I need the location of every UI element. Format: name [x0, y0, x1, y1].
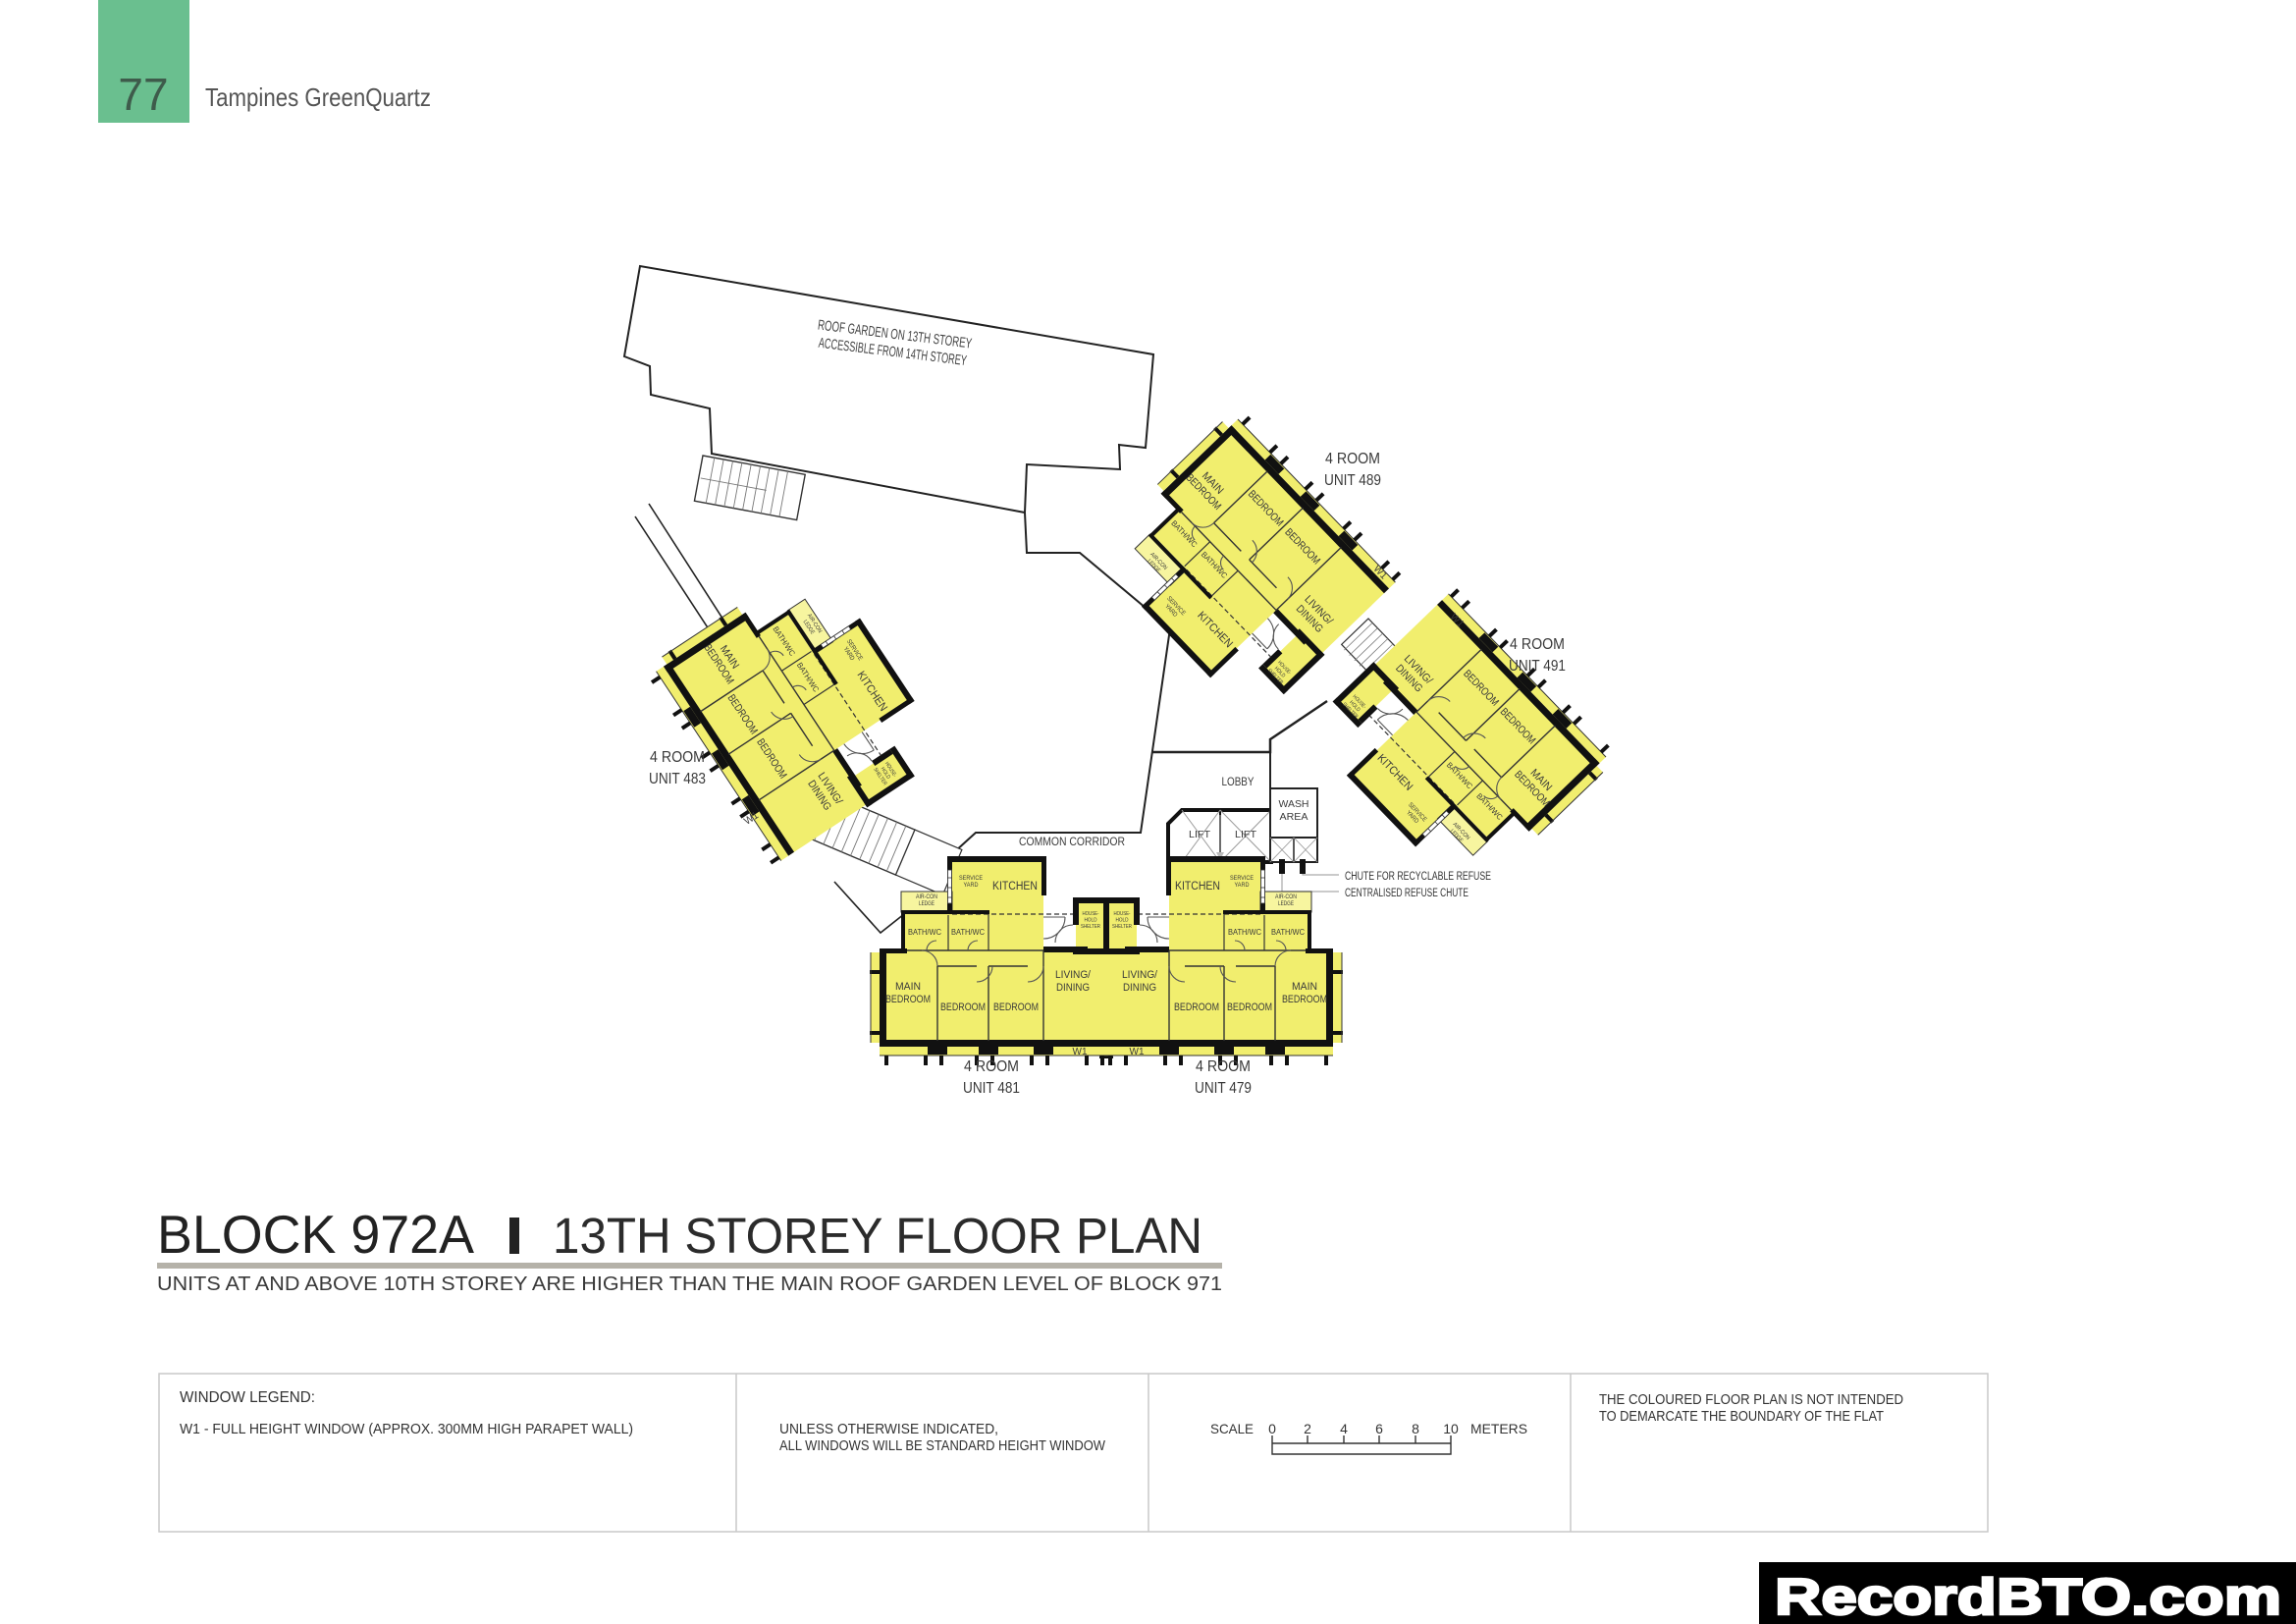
svg-text:TO DEMARCATE THE BOUNDARY OF T: TO DEMARCATE THE BOUNDARY OF THE FLAT: [1599, 1409, 1884, 1425]
svg-text:BEDROOM: BEDROOM: [1174, 1001, 1219, 1013]
svg-text:LIFT: LIFT: [1189, 829, 1211, 840]
svg-text:COMMON CORRIDOR: COMMON CORRIDOR: [1019, 835, 1125, 848]
svg-text:W1 - FULL HEIGHT WINDOW (APPR: W1 - FULL HEIGHT WINDOW (APPROX. 300MM H…: [180, 1422, 633, 1437]
svg-text:AIR-CON: AIR-CON: [1275, 894, 1297, 900]
svg-text:BEDROOM: BEDROOM: [993, 1001, 1039, 1013]
svg-text:YARD: YARD: [1235, 882, 1250, 889]
svg-text:KITCHEN: KITCHEN: [992, 881, 1038, 893]
svg-text:6: 6: [1375, 1421, 1383, 1436]
svg-text:CHUTE FOR RECYCLABLE REFUSE: CHUTE FOR RECYCLABLE REFUSE: [1345, 871, 1491, 883]
svg-text:BLOCK 972A: BLOCK 972A: [157, 1204, 474, 1265]
svg-text:UNIT 481: UNIT 481: [963, 1080, 1020, 1097]
svg-text:METERS: METERS: [1470, 1421, 1527, 1436]
svg-text:THE COLOURED FLOOR PLAN IS NOT: THE COLOURED FLOOR PLAN IS NOT INTENDED: [1599, 1392, 1903, 1408]
svg-text:BEDROOM: BEDROOM: [885, 994, 931, 1005]
svg-text:HOUSE-: HOUSE-: [1083, 911, 1099, 917]
svg-text:LIVING/: LIVING/: [1122, 969, 1158, 981]
svg-text:UNITS AT AND ABOVE 10TH STOREY: UNITS AT AND ABOVE 10TH STOREY ARE HIGHE…: [157, 1273, 1222, 1295]
svg-text:LEDGE: LEDGE: [919, 901, 934, 907]
svg-text:4 ROOM: 4 ROOM: [1325, 451, 1380, 467]
svg-text:SCALE: SCALE: [1210, 1421, 1254, 1436]
svg-text:LIVING/: LIVING/: [1055, 969, 1092, 981]
svg-text:4 ROOM: 4 ROOM: [964, 1058, 1019, 1075]
svg-text:LEDGE: LEDGE: [1278, 901, 1294, 907]
svg-text:0: 0: [1268, 1421, 1276, 1436]
svg-text:BEDROOM: BEDROOM: [1227, 1001, 1272, 1013]
svg-text:CENTRALISED REFUSE CHUTE: CENTRALISED REFUSE CHUTE: [1345, 888, 1468, 899]
svg-text:4: 4: [1340, 1421, 1348, 1436]
svg-text:WASH: WASH: [1279, 798, 1309, 810]
svg-text:UNIT 491: UNIT 491: [1509, 658, 1566, 675]
svg-text:ALL WINDOWS WILL BE STANDARD H: ALL WINDOWS WILL BE STANDARD HEIGHT WIND…: [779, 1438, 1105, 1454]
svg-text:77: 77: [118, 69, 168, 120]
svg-text:8: 8: [1412, 1421, 1419, 1436]
svg-text:AREA: AREA: [1280, 811, 1308, 823]
svg-text:YARD: YARD: [964, 882, 979, 889]
svg-text:2: 2: [1304, 1421, 1311, 1436]
svg-text:UNIT 479: UNIT 479: [1195, 1080, 1252, 1097]
svg-text:MAIN: MAIN: [1292, 981, 1317, 993]
svg-text:DINING: DINING: [1056, 982, 1090, 994]
svg-text:10: 10: [1443, 1421, 1459, 1436]
svg-text:SHELTER: SHELTER: [1081, 924, 1100, 930]
svg-text:WINDOW LEGEND:: WINDOW LEGEND:: [180, 1389, 315, 1406]
svg-text:4 ROOM: 4 ROOM: [1196, 1058, 1251, 1075]
svg-text:SERVICE: SERVICE: [1230, 875, 1255, 882]
svg-text:SERVICE: SERVICE: [959, 875, 984, 882]
svg-text:BATH/WC: BATH/WC: [1271, 928, 1305, 937]
svg-text:4 ROOM: 4 ROOM: [1510, 636, 1565, 653]
svg-text:UNIT 489: UNIT 489: [1324, 472, 1381, 489]
svg-text:UNLESS OTHERWISE INDICATED,: UNLESS OTHERWISE INDICATED,: [779, 1422, 998, 1437]
svg-text:MAIN: MAIN: [895, 981, 921, 993]
svg-text:UNIT 483: UNIT 483: [649, 771, 706, 787]
svg-text:AIR-CON: AIR-CON: [916, 894, 937, 900]
svg-text:BEDROOM: BEDROOM: [940, 1001, 986, 1013]
svg-text:BATH/WC: BATH/WC: [908, 928, 941, 937]
svg-text:SHELTER: SHELTER: [1112, 924, 1132, 930]
svg-text:BEDROOM: BEDROOM: [1282, 994, 1327, 1005]
svg-text:W1: W1: [1130, 1046, 1145, 1057]
svg-text:RecordBTO.com: RecordBTO.com: [1775, 1569, 2281, 1624]
svg-text:LOBBY: LOBBY: [1222, 775, 1255, 788]
svg-text:DINING: DINING: [1123, 982, 1156, 994]
svg-text:4 ROOM: 4 ROOM: [650, 749, 705, 766]
svg-text:BATH/WC: BATH/WC: [1228, 928, 1261, 937]
svg-text:HOLD: HOLD: [1116, 918, 1129, 924]
svg-text:LIFT: LIFT: [1235, 829, 1257, 840]
svg-text:KITCHEN: KITCHEN: [1175, 881, 1220, 893]
svg-text:13TH STOREY FLOOR PLAN: 13TH STOREY FLOOR PLAN: [553, 1208, 1202, 1264]
svg-text:W1: W1: [1073, 1046, 1088, 1057]
svg-text:HOLD: HOLD: [1085, 918, 1097, 924]
svg-text:Tampines GreenQuartz: Tampines GreenQuartz: [205, 82, 431, 112]
svg-text:HOUSE-: HOUSE-: [1114, 911, 1131, 917]
svg-text:BATH/WC: BATH/WC: [951, 928, 985, 937]
